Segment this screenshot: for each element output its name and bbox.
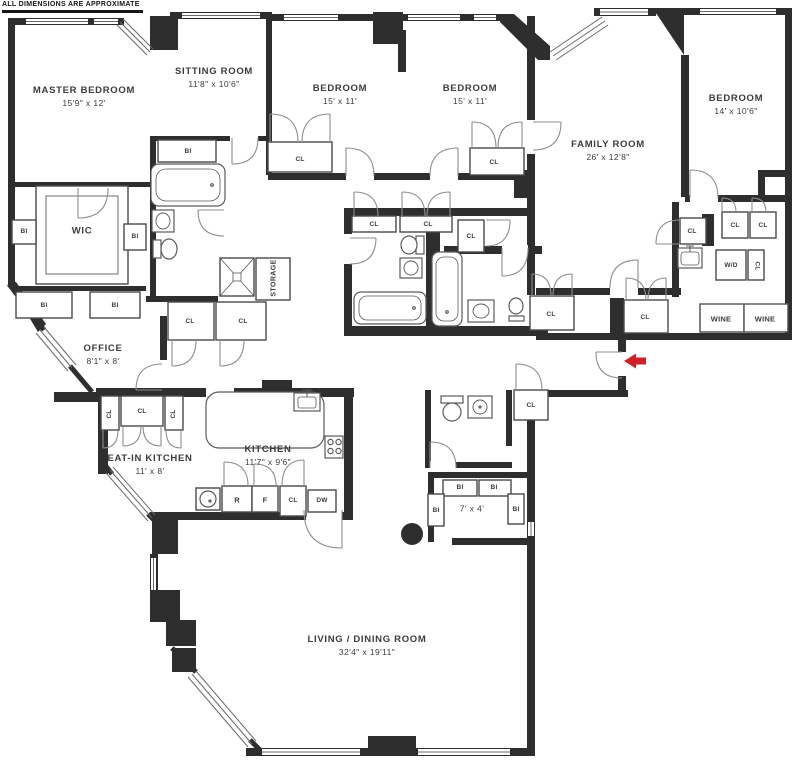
label-closet: CL bbox=[295, 157, 304, 164]
label-closet: CL bbox=[185, 319, 194, 326]
sink-powder bbox=[468, 396, 492, 418]
room-label-eat-in-kitchen: EAT-IN KITCHEN 11' x 8' bbox=[107, 453, 192, 477]
label-built-in: BI bbox=[491, 485, 498, 492]
label-closet: CL bbox=[171, 409, 178, 418]
label-built-in: BI bbox=[185, 149, 192, 156]
label-closet: CL bbox=[753, 261, 760, 270]
utility-sink bbox=[678, 246, 702, 268]
structural-column bbox=[401, 523, 423, 545]
toilet-master bbox=[153, 239, 177, 259]
label-built-in: BI bbox=[21, 229, 28, 236]
room-label-bedroom-2: BEDROOM 15' x 11' bbox=[313, 83, 368, 107]
room-label-bedroom-3: BEDROOM 15' x 11' bbox=[443, 83, 498, 107]
room-label-kitchen: KITCHEN 11'7" x 9'6" bbox=[244, 444, 291, 468]
bathtub-bath-b bbox=[432, 252, 462, 326]
label-closet: CL bbox=[546, 312, 555, 319]
room-label-family-room: FAMILY ROOM 26' x 12'8" bbox=[571, 139, 645, 163]
label-closet: CL bbox=[466, 234, 475, 241]
label-closet: CL bbox=[369, 222, 378, 229]
label-built-in: BI bbox=[41, 303, 48, 310]
door-family-room bbox=[610, 260, 638, 288]
label-closet: CL bbox=[687, 229, 696, 236]
bathtub-bath-a bbox=[354, 292, 426, 324]
door-bedroom-4 bbox=[690, 170, 718, 198]
stove bbox=[325, 436, 343, 458]
label-built-in: BI bbox=[112, 303, 119, 310]
label-closet: CL bbox=[107, 409, 114, 418]
room-label-sitting-room: SITTING ROOM 11'8" x 10'6" bbox=[175, 66, 253, 90]
room-label-office: OFFICE 8'1" x 8' bbox=[83, 343, 122, 367]
room-label-bedroom-4: BEDROOM 14' x 10'6" bbox=[709, 93, 764, 117]
door-master-bath bbox=[198, 210, 224, 236]
door-foyer-closet bbox=[516, 364, 542, 390]
label-built-in: BI bbox=[457, 485, 464, 492]
toilet-bath-b bbox=[509, 298, 524, 321]
label-closet: CL bbox=[758, 223, 767, 230]
door-office bbox=[136, 364, 162, 390]
label-built-in: BI bbox=[433, 508, 440, 515]
sink-bath-a bbox=[400, 258, 422, 278]
toilet-powder bbox=[441, 396, 463, 421]
room-label-master-bedroom: MASTER BEDROOM 15'9" x 12' bbox=[33, 85, 135, 109]
label-closet: CL bbox=[640, 315, 649, 322]
disclaimer-text: ALL DIMENSIONS ARE APPROXIMATE bbox=[2, 1, 143, 13]
label-washer-dryer: W/D bbox=[724, 263, 737, 270]
sink-master bbox=[152, 210, 174, 232]
room-label-utility: 7' x 4' bbox=[460, 503, 484, 514]
label-closet: CL bbox=[238, 319, 247, 326]
label-closet: CL bbox=[730, 223, 739, 230]
label-freezer: F bbox=[263, 496, 268, 504]
label-built-in: BI bbox=[132, 234, 139, 241]
room-label-living-dining: LIVING / DINING ROOM 32'4" x 19'11" bbox=[307, 634, 426, 658]
label-closet: CL bbox=[489, 160, 498, 167]
label-closet: CL bbox=[288, 498, 297, 505]
label-wine: WINE bbox=[755, 315, 775, 323]
room-label-storage: STORAGE bbox=[269, 259, 278, 296]
door-family-hall bbox=[533, 122, 561, 150]
bathtub-master bbox=[151, 164, 225, 206]
kitchen-sink bbox=[294, 390, 320, 411]
sink-bath-b bbox=[468, 300, 494, 322]
toilet-bath-a bbox=[401, 236, 424, 254]
label-closet: CL bbox=[137, 409, 146, 416]
door-bedroom-3 bbox=[430, 148, 458, 176]
label-built-in: BI bbox=[513, 507, 520, 514]
label-closet: CL bbox=[423, 222, 432, 229]
label-wine: WINE bbox=[711, 315, 731, 323]
room-label-wic: WIC bbox=[72, 226, 93, 239]
door-bedroom-2 bbox=[346, 148, 374, 176]
round-sink bbox=[200, 491, 216, 507]
entrance-arrow-icon bbox=[624, 354, 646, 369]
floor-plan: ALL DIMENSIONS ARE APPROXIMATE MASTER BE… bbox=[0, 0, 800, 760]
label-refrigerator: R bbox=[234, 496, 240, 504]
label-dishwasher: DW bbox=[316, 498, 327, 505]
label-closet: CL bbox=[526, 403, 535, 410]
